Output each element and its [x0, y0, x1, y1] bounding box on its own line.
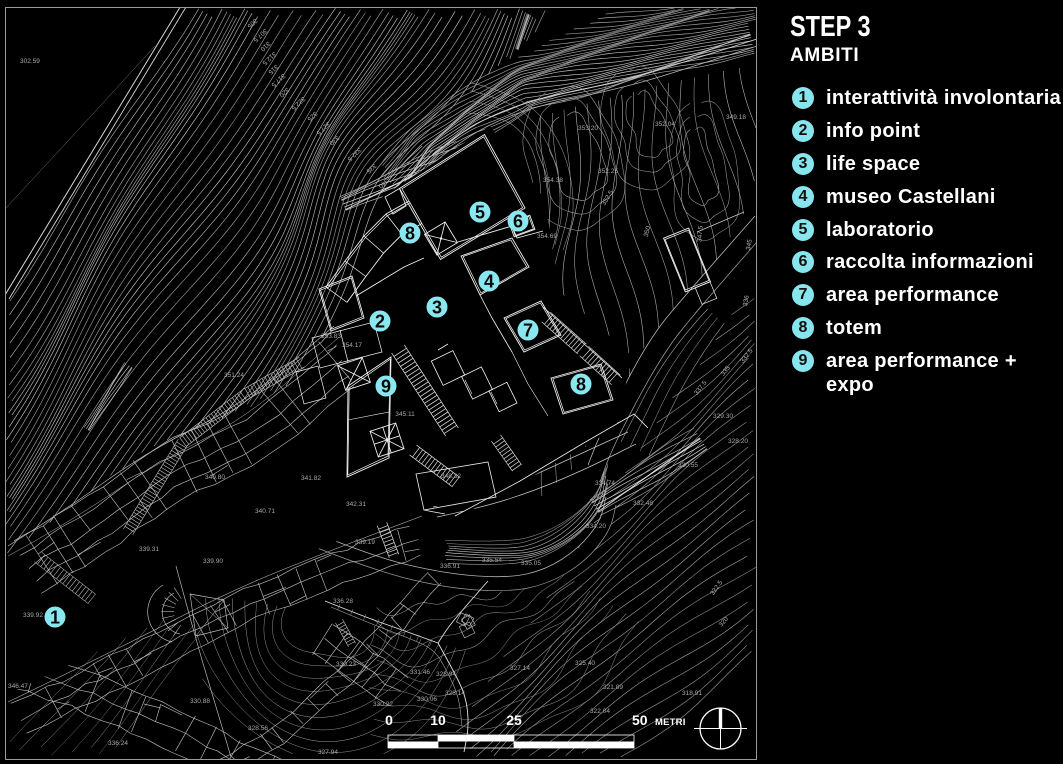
svg-text:347.5: 347.5 [696, 225, 704, 242]
svg-text:332.48: 332.48 [633, 500, 653, 507]
svg-text:348.32: 348.32 [441, 473, 461, 480]
svg-text:8: 8 [576, 375, 586, 395]
svg-text:1: 1 [50, 608, 60, 628]
svg-text:352.25: 352.25 [598, 168, 618, 175]
svg-text:335.05: 335.05 [521, 560, 541, 567]
svg-text:346.47: 346.47 [8, 683, 28, 690]
svg-text:302.59: 302.59 [20, 58, 40, 65]
svg-text:50: 50 [632, 712, 648, 728]
svg-text:328.20: 328.20 [728, 438, 748, 445]
svg-text:329.30: 329.30 [713, 413, 733, 420]
svg-text:9: 9 [381, 377, 391, 397]
svg-text:5: 5 [475, 203, 485, 223]
svg-text:METRI: METRI [655, 717, 686, 728]
svg-text:322.04: 322.04 [590, 708, 610, 715]
svg-text:353.20: 353.20 [578, 125, 598, 132]
svg-text:334.20: 334.20 [586, 523, 606, 530]
svg-text:330.23: 330.23 [336, 661, 356, 668]
svg-text:340.80: 340.80 [205, 474, 225, 481]
svg-text:8: 8 [405, 224, 415, 244]
svg-text:352.04: 352.04 [655, 121, 675, 128]
svg-text:328.56: 328.56 [248, 725, 268, 732]
svg-text:327.94: 327.94 [318, 749, 338, 756]
svg-text:335.54: 335.54 [482, 557, 502, 564]
svg-text:351.24: 351.24 [224, 372, 244, 379]
svg-text:330.06: 330.06 [417, 696, 437, 703]
svg-text:354.69: 354.69 [537, 233, 557, 240]
svg-text:328.14: 328.14 [445, 690, 465, 697]
svg-text:10: 10 [430, 712, 446, 728]
svg-text:25: 25 [506, 712, 522, 728]
svg-text:339.90: 339.90 [203, 558, 223, 565]
svg-text:339.31: 339.31 [139, 546, 159, 553]
svg-text:336.28: 336.28 [333, 598, 353, 605]
svg-text:345.11: 345.11 [395, 411, 415, 418]
svg-text:328.94: 328.94 [436, 671, 456, 678]
svg-text:325.40: 325.40 [575, 660, 595, 667]
svg-text:330.22: 330.22 [373, 701, 393, 708]
svg-text:4: 4 [484, 272, 494, 292]
svg-text:341.82: 341.82 [301, 475, 321, 482]
svg-text:354.17: 354.17 [342, 342, 362, 349]
svg-text:339.92: 339.92 [23, 612, 43, 619]
svg-text:349.18: 349.18 [726, 114, 746, 121]
svg-text:318.91: 318.91 [682, 690, 702, 697]
svg-text:336.91: 336.91 [440, 563, 460, 570]
svg-text:342.31: 342.31 [346, 501, 366, 508]
svg-text:331.46: 331.46 [410, 669, 430, 676]
svg-text:340.71: 340.71 [255, 508, 275, 515]
svg-text:321.89: 321.89 [603, 684, 623, 691]
svg-text:0: 0 [385, 712, 393, 728]
svg-text:2: 2 [375, 312, 385, 332]
svg-text:330.55: 330.55 [678, 462, 698, 469]
svg-text:339.19: 339.19 [355, 539, 375, 546]
svg-text:7: 7 [523, 321, 533, 341]
svg-text:354.38: 354.38 [543, 177, 563, 184]
svg-text:353.83: 353.83 [321, 333, 341, 340]
svg-text:6: 6 [513, 212, 523, 232]
svg-text:327.14: 327.14 [510, 665, 530, 672]
svg-text:3: 3 [432, 298, 442, 318]
svg-text:334.74: 334.74 [595, 480, 615, 487]
svg-text:330.88: 330.88 [190, 698, 210, 705]
svg-text:336.24: 336.24 [108, 740, 128, 747]
